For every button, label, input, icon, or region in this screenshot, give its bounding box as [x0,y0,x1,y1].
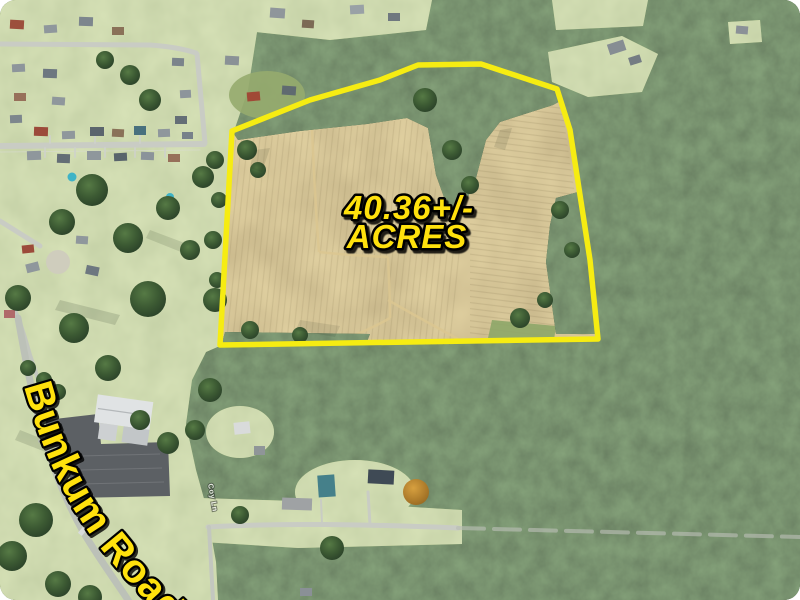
main-street [0,144,204,146]
driveway-1 [368,492,370,525]
driveway-2 [321,500,322,524]
aerial-photo: 40.36+/- ACRES Bunkum Road Coy Ln [0,0,800,600]
autumn-tree [403,479,429,505]
acreage-line2: ACRES [346,218,468,255]
satellite-scene: 40.36+/- ACRES Bunkum Road Coy Ln [0,0,800,600]
culdesac [46,250,70,274]
acreage-label: 40.36+/- ACRES [343,189,474,255]
